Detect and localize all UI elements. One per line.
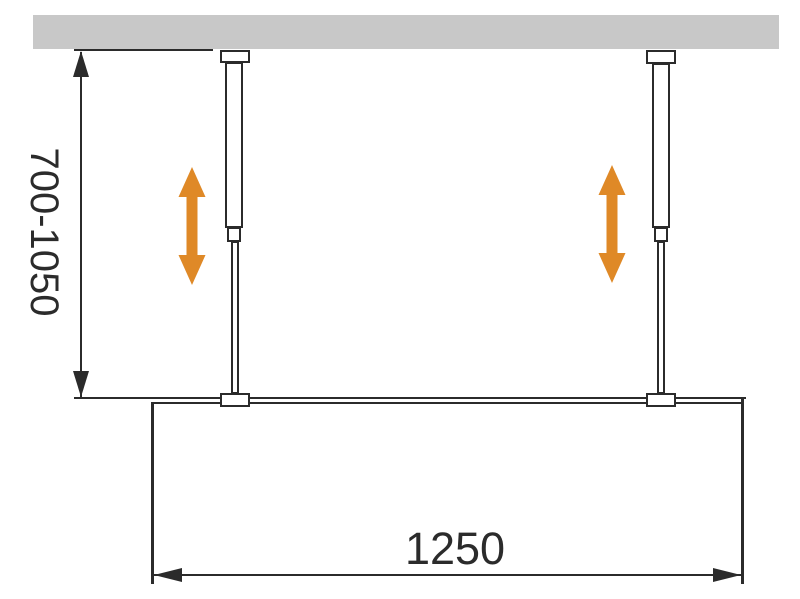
width-dimension-arrowhead-right-icon [713, 568, 741, 582]
right-strut-ceiling-bracket [646, 50, 676, 64]
height-adjust-arrow-right-icon [598, 165, 626, 288]
height-adjust-arrow-left-icon [178, 167, 206, 290]
left-strut-adjustment-collar [227, 227, 241, 242]
height-dimension-arrowhead-down-icon [73, 371, 89, 397]
right-strut-glass-clamp [646, 393, 676, 407]
glass-panel-left-edge [151, 402, 154, 584]
installation-diagram: 700-1050 1250 [0, 0, 800, 599]
width-dimension-arrowhead-left-icon [154, 568, 182, 582]
left-strut-lower-rod [231, 241, 239, 394]
right-strut-upper-tube [652, 63, 670, 228]
height-dimension-line [80, 52, 82, 397]
glass-panel-right-edge [741, 397, 744, 584]
height-dimension-arrowhead-up-icon [73, 51, 89, 77]
right-strut-lower-rod [657, 241, 665, 394]
left-strut-glass-clamp [220, 393, 250, 407]
height-dimension-label: 700-1050 [20, 82, 68, 382]
right-strut-adjustment-collar [654, 227, 668, 242]
width-dimension-line [154, 574, 742, 576]
width-dimension-label: 1250 [305, 526, 605, 572]
left-strut-upper-tube [225, 62, 243, 228]
height-dimension-extension-line [74, 49, 213, 51]
ceiling-bar [33, 15, 779, 49]
